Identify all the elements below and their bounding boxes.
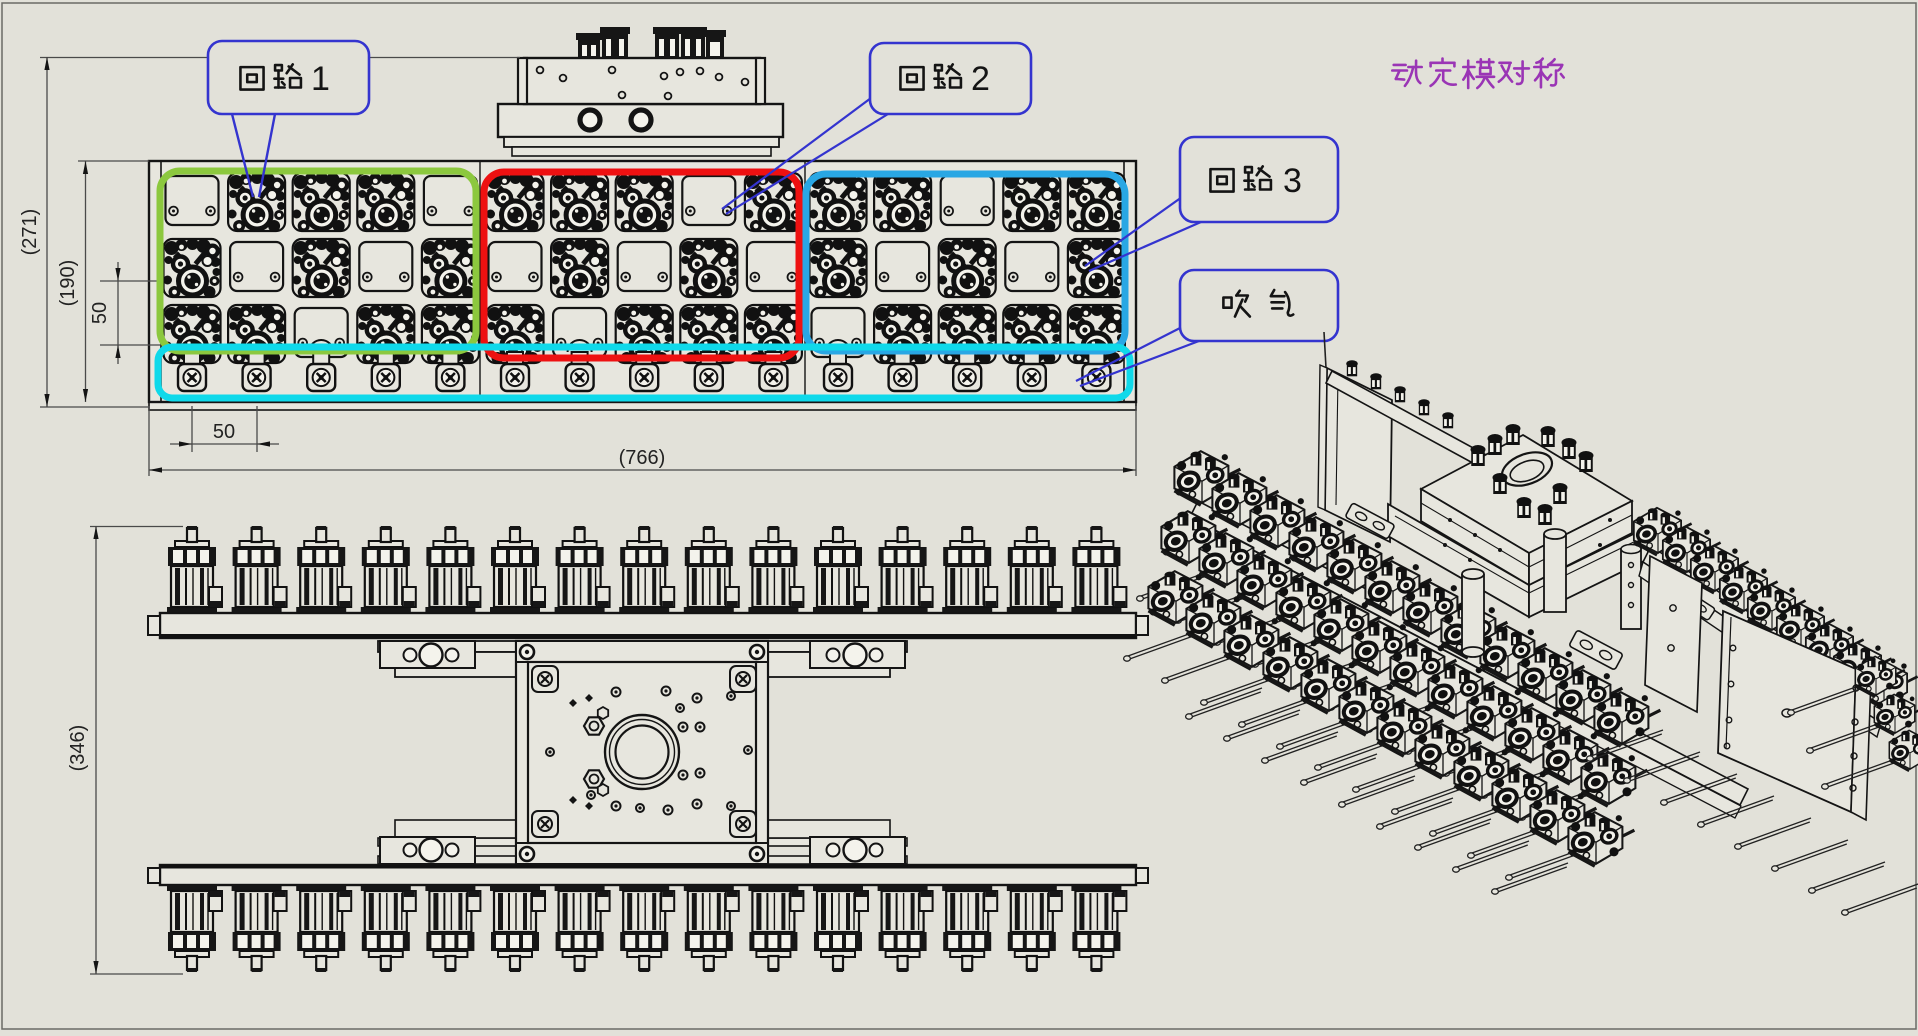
svg-text:2: 2 — [971, 60, 990, 98]
svg-text:(766): (766) — [619, 447, 666, 469]
svg-text:3: 3 — [1283, 162, 1302, 200]
svg-text:(346): (346) — [67, 725, 89, 772]
svg-text:(271): (271) — [19, 209, 41, 256]
svg-text:50: 50 — [213, 421, 235, 443]
svg-text:50: 50 — [89, 302, 111, 324]
svg-text:1: 1 — [311, 60, 330, 98]
svg-text:(190): (190) — [57, 260, 79, 307]
